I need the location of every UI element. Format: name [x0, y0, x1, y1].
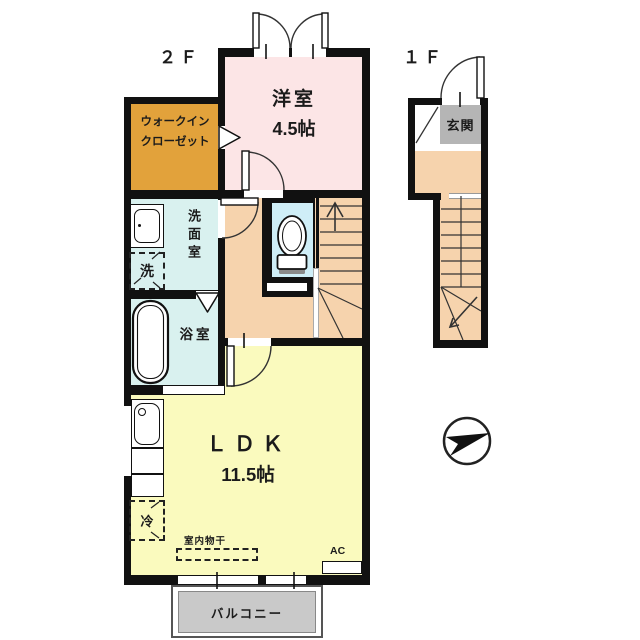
door-opening — [218, 200, 225, 238]
indoor-laundry-label: 室内物干 — [184, 533, 226, 547]
wall — [124, 385, 162, 395]
ac-unit — [322, 561, 362, 574]
floor-plan: 洗 冷 バルコニー — [0, 0, 640, 640]
wall — [218, 294, 225, 395]
window-opening — [266, 576, 306, 584]
ldk-area: 11.5帖 — [158, 461, 338, 487]
walk-in-closet-label: ウォークイン クローゼット — [133, 113, 217, 152]
wall — [218, 48, 225, 104]
indoor-laundry-bar — [176, 548, 258, 561]
ldk-label: ＬＤＫ 11.5帖 — [158, 428, 338, 487]
washroom-label: 洗面室 — [184, 209, 203, 293]
room-shoe-cabinet — [415, 105, 439, 144]
western-room-name: 洋室 — [233, 84, 355, 111]
floor-label-2f-text: ２Ｆ — [159, 43, 201, 68]
room-stairs-2f — [319, 198, 362, 338]
washing-machine-space: 洗 — [129, 252, 165, 290]
wall — [408, 193, 441, 200]
ac-label: AC — [330, 545, 345, 557]
western-room-label: 洋室 4.5帖 — [233, 84, 355, 141]
washing-machine-label: 洗 — [140, 261, 154, 281]
stairs-entry — [313, 268, 319, 338]
toilet-door — [267, 283, 307, 291]
entrance-label-text: 玄関 — [446, 115, 474, 134]
wall — [481, 98, 488, 348]
wall — [433, 340, 488, 348]
bathroom-label: 浴室 — [168, 323, 224, 343]
door-opening — [218, 126, 225, 149]
floor-label-1f-text: １Ｆ — [403, 43, 445, 68]
floor-label-1f: １Ｆ — [392, 44, 456, 66]
pass-through — [162, 385, 225, 395]
wall — [316, 198, 319, 268]
wall — [433, 200, 440, 340]
compass-icon — [444, 418, 490, 464]
wall — [124, 190, 225, 199]
door-opening — [228, 338, 271, 346]
wall — [408, 98, 415, 193]
kitchen-window — [124, 405, 131, 477]
window-opening — [178, 576, 258, 584]
room-landing-1f — [415, 151, 481, 193]
entrance-label: 玄関 — [440, 105, 481, 144]
window-opening — [292, 48, 326, 57]
wall — [362, 48, 370, 585]
door-opening — [244, 190, 283, 198]
room-toilet — [272, 203, 313, 277]
floor-label-2f: ２Ｆ — [148, 44, 212, 66]
western-room-area: 4.5帖 — [233, 115, 355, 141]
kitchen-faucet — [138, 408, 146, 416]
refrigerator-label: 冷 — [140, 511, 153, 530]
washbasin-drain — [138, 224, 141, 227]
balcony-floor: バルコニー — [178, 591, 316, 633]
stairs-top-step — [449, 193, 481, 199]
entrance-step — [415, 144, 481, 151]
ldk-name: ＬＤＫ — [158, 428, 338, 458]
room-stairs-1f — [440, 193, 481, 340]
wall — [124, 97, 225, 104]
entrance-door-opening — [442, 98, 480, 105]
balcony-label: バルコニー — [211, 603, 283, 622]
window-opening — [254, 48, 289, 57]
casement-window-icon — [253, 13, 328, 48]
wic-line1: ウォークイン — [133, 113, 217, 133]
wic-line2: クローゼット — [133, 133, 217, 153]
refrigerator-space: 冷 — [129, 500, 165, 541]
